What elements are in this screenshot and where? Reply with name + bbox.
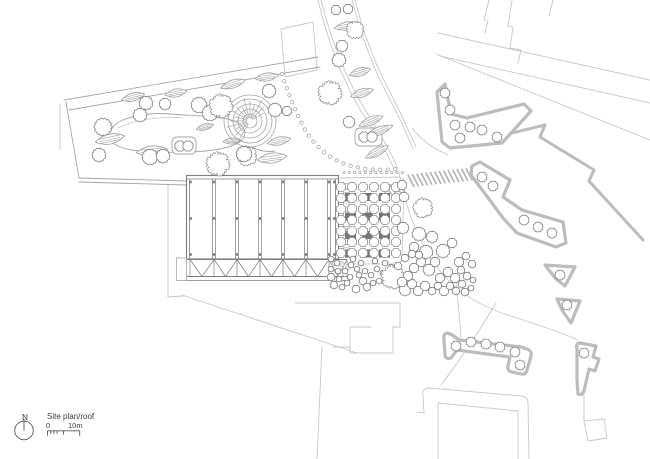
building-roof	[177, 176, 351, 282]
plan-title: Site plan/roof	[47, 413, 94, 421]
site-plan-drawing	[0, 0, 650, 459]
scale-ten-label: 10m	[68, 422, 83, 430]
planting-mounds	[94, 20, 394, 165]
site-plan-page: N Site plan/roof 0 10m	[0, 0, 650, 459]
scale-bar	[48, 431, 80, 436]
scale-zero-label: 0	[46, 422, 50, 430]
north-label: N	[19, 414, 31, 422]
north-arrow	[15, 419, 34, 440]
